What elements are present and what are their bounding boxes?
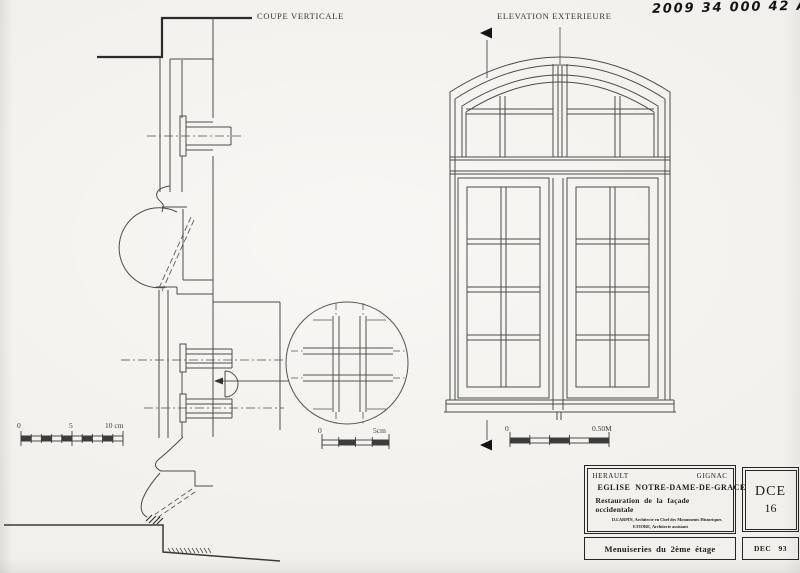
scanned-architectural-sheet: { "colors": { "paper": "#f2f0ec", "ink":… (0, 0, 800, 573)
glazing-bar-section-upper (147, 116, 241, 156)
doc-number: 16 (765, 501, 777, 516)
sheet-title-box: Menuiseries du 2ème étage (584, 537, 736, 560)
section-scale-tick-0: 0 (17, 421, 21, 430)
architect-credits: D.LARPIN, Architecte en Chef des Monumen… (593, 518, 728, 532)
section-drawing (4, 18, 284, 561)
elevation-scale-tick-050m: 0.50M (592, 424, 612, 433)
scale-bar-detail (322, 434, 389, 449)
glazing-bar-section-middle-b (144, 394, 284, 422)
title-block-inner-border: HERAULT GIGNAC EGLISE NOTRE-DAME-DE-GRAC… (587, 468, 734, 532)
scale-bar-section (21, 431, 123, 446)
section-scale-tick-10cm: 10 cm (105, 421, 124, 430)
section-drawing-label: COUPE VERTICALE (257, 11, 344, 21)
dce-box: DCE 16 (742, 467, 799, 532)
sheet-title: Menuiseries du 2ème étage (585, 538, 735, 559)
doc-code: DCE (755, 484, 786, 500)
detail-circle (214, 302, 408, 425)
architect-line-2: F.FIORE, Architecte assistant (611, 525, 708, 530)
scale-bar-elevation (510, 432, 609, 447)
glazing-bar-section-middle-a (121, 344, 284, 372)
department-label: HERAULT (593, 472, 629, 480)
commune-label: GIGNAC (697, 472, 728, 480)
project-title: Restauration de la façade occidentale (593, 496, 728, 514)
right-casement (567, 178, 658, 398)
elevation-drawing-label: ELEVATION EXTERIEURE (497, 11, 612, 21)
elevation-drawing (444, 27, 676, 451)
date-label: DEC 93 (743, 538, 798, 559)
sill-moulding (141, 437, 213, 524)
detail-centerlines (291, 303, 405, 425)
detail-scale-tick-0: 0 (318, 426, 322, 435)
building-name: EGLISE NOTRE-DAME-DE-GRACE (593, 483, 728, 492)
sill (444, 400, 676, 420)
section-scale-tick-5: 5 (69, 421, 73, 430)
dce-box-inner-border: DCE 16 (745, 470, 797, 530)
detail-scale-tick-5cm: 5cm (373, 426, 386, 435)
title-block: HERAULT GIGNAC EGLISE NOTRE-DAME-DE-GRAC… (584, 465, 736, 534)
date-box: DEC 93 (742, 537, 799, 560)
dce-content: DCE 16 (746, 471, 796, 529)
architect-line-1: D.LARPIN, Architecte en Chef des Monumen… (611, 518, 708, 523)
elevation-scale-tick-0: 0 (505, 424, 509, 433)
title-block-content: HERAULT GIGNAC EGLISE NOTRE-DAME-DE-GRAC… (593, 472, 728, 528)
left-casement (458, 178, 549, 398)
meeting-rail-bump (225, 371, 238, 397)
